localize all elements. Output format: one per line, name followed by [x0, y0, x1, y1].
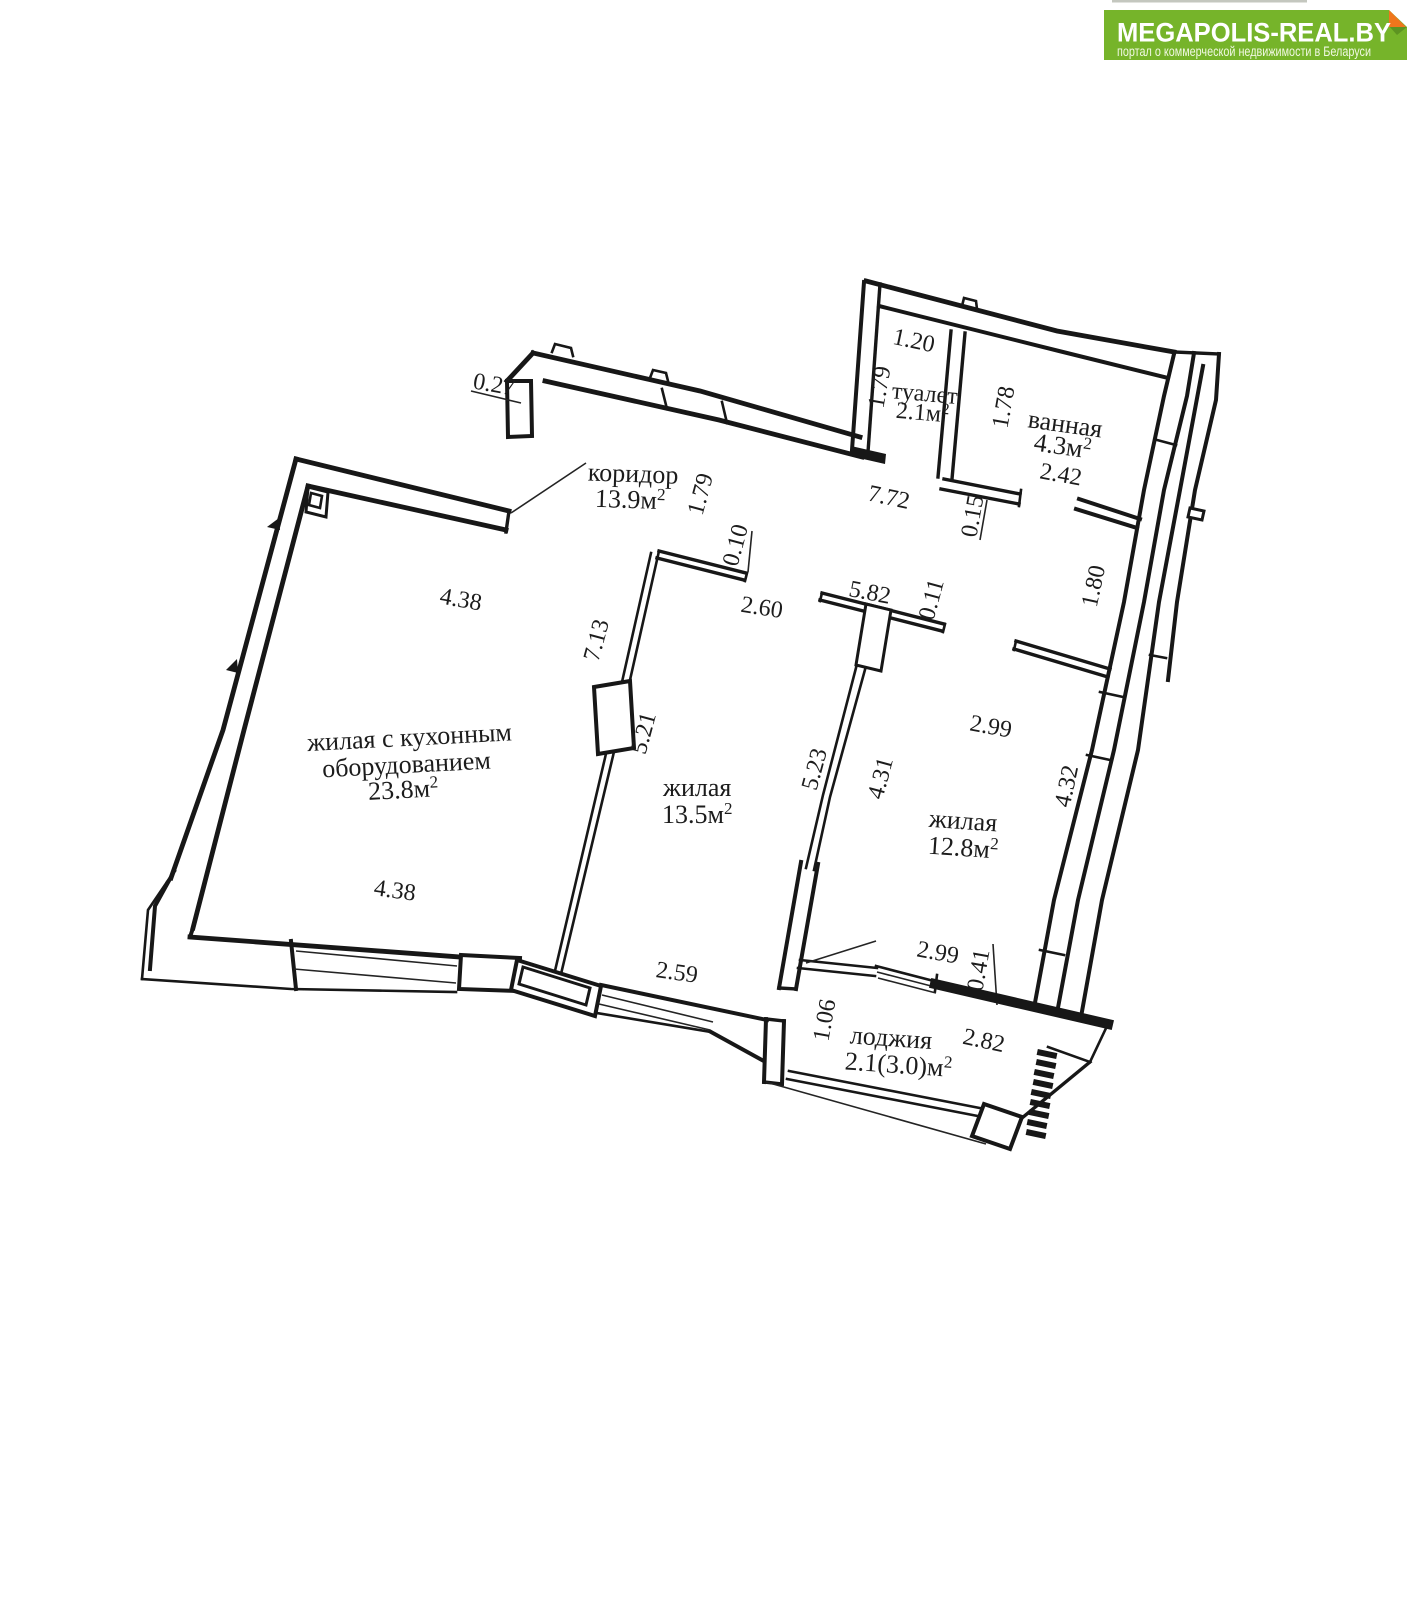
svg-text:портал о коммерческой недвижим: портал о коммерческой недвижимости в Бел… [1117, 44, 1371, 59]
svg-text:MEGAPOLIS-REAL.BY: MEGAPOLIS-REAL.BY [1117, 18, 1391, 48]
svg-text:13.9м2: 13.9м2 [594, 483, 665, 515]
svg-text:12.8м2: 12.8м2 [927, 830, 999, 865]
svg-text:13.5м2: 13.5м2 [662, 799, 732, 829]
svg-text:23.8м2: 23.8м2 [367, 772, 439, 806]
svg-text:жилая: жилая [662, 773, 731, 802]
